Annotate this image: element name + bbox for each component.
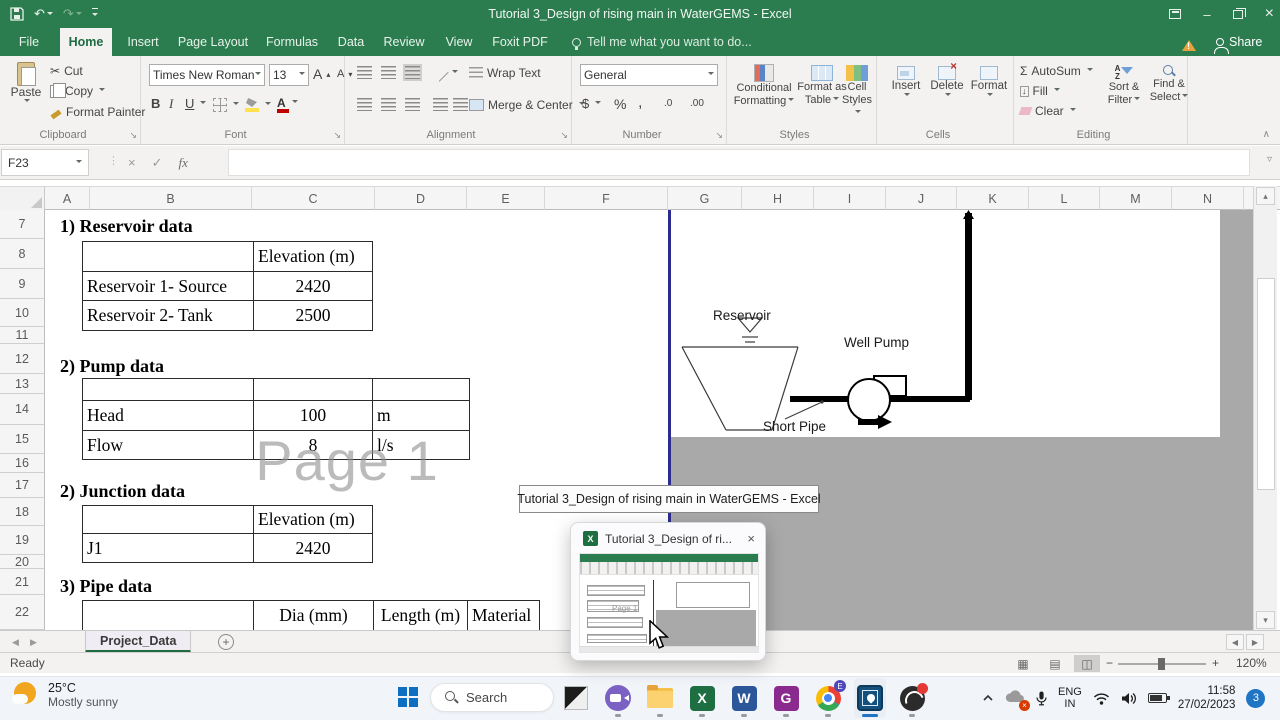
accounting-format-button[interactable]: $ bbox=[582, 96, 601, 111]
cell[interactable]: Elevation (m) bbox=[254, 242, 373, 272]
dropdown-arrow-icon bbox=[595, 101, 601, 107]
weather-condition: Mostly sunny bbox=[48, 695, 118, 709]
enter-entry-icon[interactable]: ✓ bbox=[152, 155, 163, 171]
tray-time: 11:58 bbox=[1207, 684, 1235, 698]
vertical-scroll-thumb[interactable] bbox=[1257, 278, 1275, 490]
namebox-splitter[interactable]: ⋮ bbox=[108, 154, 119, 167]
dropdown-arrow-icon bbox=[233, 102, 239, 108]
cell[interactable]: 8 bbox=[254, 431, 373, 460]
row-header[interactable]: 18 bbox=[0, 498, 45, 526]
zoom-in-button[interactable]: + bbox=[1212, 656, 1219, 670]
cell[interactable]: Dia (mm) bbox=[254, 601, 374, 630]
pipe-table[interactable]: Dia (mm) Length (m) Material bbox=[82, 600, 540, 630]
alignment-group: Wrap Text Merge & Center Alignment ↘ bbox=[345, 56, 572, 144]
page-layout-view-button[interactable]: ▤ bbox=[1042, 655, 1068, 672]
insert-cells-icon bbox=[897, 66, 915, 80]
delete-cells-button[interactable]: Delete bbox=[927, 66, 967, 99]
bottom-align-icon[interactable] bbox=[405, 66, 420, 79]
top-align-icon[interactable] bbox=[357, 66, 372, 79]
tab-data[interactable]: Data bbox=[330, 28, 372, 56]
row-header[interactable]: 22 bbox=[0, 595, 45, 630]
preview-close-icon[interactable]: × bbox=[747, 531, 755, 546]
window-title: Tutorial 3_Design of rising main in Wate… bbox=[0, 0, 1280, 28]
tab-formulas[interactable]: Formulas bbox=[260, 28, 324, 56]
row-header[interactable]: 21 bbox=[0, 569, 45, 595]
column-header-h[interactable]: H bbox=[742, 187, 814, 210]
dropdown-arrow-icon bbox=[987, 93, 993, 99]
system-tray: × ENG IN 11:58 27/02/2023 3 bbox=[982, 676, 1265, 720]
row-header[interactable]: 8 bbox=[0, 239, 45, 269]
excel-icon: X bbox=[690, 686, 715, 711]
preview-title: Tutorial 3_Design of ri... bbox=[605, 532, 732, 546]
scissors-icon: ✂ bbox=[50, 64, 60, 78]
row-header[interactable]: 19 bbox=[0, 526, 45, 555]
tray-clock[interactable]: 11:58 27/02/2023 bbox=[1178, 684, 1236, 712]
zoom-out-button[interactable]: − bbox=[1106, 656, 1113, 670]
alignment-dialog-launcher[interactable]: ↘ bbox=[560, 130, 568, 141]
sort-filter-button[interactable]: AZ Sort &Filter bbox=[1102, 65, 1146, 107]
minimize-button[interactable]: – bbox=[1203, 7, 1210, 22]
format-as-table-icon bbox=[811, 65, 833, 81]
cell[interactable]: Head bbox=[83, 401, 254, 431]
font-group-label: Font bbox=[141, 129, 330, 141]
ribbon-tab-row: File Home Insert Page Layout Formulas Da… bbox=[0, 28, 1280, 56]
fill-button[interactable]: ↓Fill bbox=[1020, 84, 1060, 98]
diagram-label-well-pump: Well Pump bbox=[844, 335, 909, 350]
dropdown-arrow-icon bbox=[299, 72, 305, 78]
borders-icon bbox=[213, 98, 227, 112]
number-dialog-launcher[interactable]: ↘ bbox=[715, 130, 723, 141]
tab-home[interactable]: Home bbox=[60, 28, 112, 56]
sheet-tab-project-data[interactable]: Project_Data bbox=[85, 631, 191, 653]
dropdown-arrow-icon bbox=[255, 72, 261, 78]
dropdown-arrow-icon bbox=[945, 93, 951, 99]
wrap-text-icon bbox=[469, 67, 483, 79]
collapse-ribbon-button[interactable]: ∧ bbox=[1263, 129, 1270, 140]
dropdown-arrow-icon bbox=[855, 110, 861, 116]
merge-center-icon bbox=[469, 99, 484, 111]
delete-cells-icon bbox=[938, 66, 956, 80]
foxit-pdf-icon: G bbox=[774, 686, 799, 711]
hscroll-left-icon[interactable]: ◀ bbox=[1226, 634, 1244, 650]
grow-font-button[interactable]: A▴ bbox=[313, 66, 330, 82]
page-break-view-button[interactable]: ◫ bbox=[1074, 655, 1100, 672]
alignment-group-label: Alignment bbox=[345, 129, 557, 141]
cell[interactable]: Flow bbox=[83, 431, 254, 460]
search-icon bbox=[445, 691, 458, 704]
cell[interactable]: 100 bbox=[254, 401, 373, 431]
taskbar-item-task-view[interactable] bbox=[560, 678, 592, 718]
fill-color-button[interactable] bbox=[245, 98, 271, 112]
tab-review[interactable]: Review bbox=[378, 28, 430, 56]
row-header[interactable]: 20 bbox=[0, 555, 45, 569]
select-all-corner[interactable] bbox=[0, 187, 45, 210]
warning-icon[interactable]: ! bbox=[1182, 33, 1196, 51]
reservoir-table[interactable]: Elevation (m) Reservoir 1- Source 2420 R… bbox=[82, 241, 373, 331]
copy-icon bbox=[50, 85, 61, 98]
pump-heading: 2) Pump data bbox=[60, 356, 164, 377]
column-header-a[interactable]: A bbox=[45, 187, 90, 210]
word-icon: W bbox=[732, 686, 757, 711]
format-painter-button[interactable]: Format Painter bbox=[50, 105, 145, 119]
cell-styles-icon bbox=[846, 65, 868, 81]
cut-button[interactable]: ✂Cut bbox=[50, 64, 83, 78]
dropdown-arrow-icon bbox=[1182, 94, 1188, 100]
taskbar-item-foxit[interactable]: G bbox=[770, 678, 802, 718]
next-sheet-icon[interactable]: ▶ bbox=[30, 631, 37, 653]
taskbar-item-watergems[interactable] bbox=[854, 678, 886, 718]
reservoir-heading: 1) Reservoir data bbox=[60, 216, 193, 237]
cells-group: Insert Delete Format Cells bbox=[877, 56, 1014, 144]
tab-insert[interactable]: Insert bbox=[120, 28, 166, 56]
onedrive-icon[interactable]: × bbox=[1005, 689, 1025, 708]
number-group-label: Number bbox=[572, 129, 712, 141]
wrap-text-button[interactable]: Wrap Text bbox=[469, 66, 541, 80]
clipboard-group-label: Clipboard bbox=[0, 129, 126, 141]
obs-icon bbox=[900, 686, 925, 711]
row-header[interactable]: 9 bbox=[0, 269, 45, 299]
cell[interactable]: Length (m) bbox=[374, 601, 468, 630]
insert-function-button[interactable]: fx bbox=[179, 155, 188, 171]
tab-file[interactable]: File bbox=[8, 28, 50, 56]
language-indicator[interactable]: ENG IN bbox=[1058, 686, 1082, 710]
cancel-entry-icon[interactable]: × bbox=[128, 155, 136, 170]
column-header-n[interactable]: N bbox=[1172, 187, 1244, 210]
column-header-d[interactable]: D bbox=[375, 187, 467, 210]
ribbon-display-options-button[interactable] bbox=[1169, 9, 1181, 19]
format-cells-button[interactable]: Format bbox=[969, 66, 1009, 99]
notification-badge[interactable]: 3 bbox=[1246, 689, 1265, 708]
font-color-button[interactable]: A bbox=[277, 96, 298, 110]
scroll-down-icon[interactable]: ▾ bbox=[1256, 611, 1275, 629]
eraser-icon bbox=[1019, 107, 1033, 115]
column-headers: A B C D E F G H I J K L M N bbox=[0, 186, 1280, 210]
cell[interactable] bbox=[254, 379, 373, 401]
folder-icon bbox=[647, 688, 673, 708]
paste-button[interactable]: Paste bbox=[8, 62, 44, 105]
junction-table[interactable]: Elevation (m) J1 2420 bbox=[82, 505, 373, 563]
font-size-combo[interactable]: 13 bbox=[269, 64, 309, 86]
cell[interactable]: J1 bbox=[83, 534, 254, 563]
tell-me-box[interactable]: Tell me what you want to do... bbox=[572, 28, 752, 56]
diagram-label-short-pipe: Short Pipe bbox=[763, 419, 826, 434]
cell[interactable]: Elevation (m) bbox=[254, 506, 373, 534]
percent-style-button[interactable]: % bbox=[614, 96, 626, 112]
tray-expand-chevron-icon[interactable] bbox=[982, 694, 994, 702]
cell[interactable]: Material bbox=[468, 601, 540, 630]
tab-foxit-pdf[interactable]: Foxit PDF bbox=[488, 28, 552, 56]
font-color-icon: A bbox=[277, 96, 286, 110]
dropdown-arrow-icon bbox=[1134, 97, 1140, 103]
vertical-scrollbar[interactable]: ▴ ▾ bbox=[1253, 186, 1277, 630]
window-controls: – × bbox=[1169, 0, 1274, 28]
pump-scheme-diagram[interactable]: Reservoir Well Pump Short Pipe bbox=[672, 210, 1220, 437]
person-icon bbox=[1216, 38, 1224, 46]
taskbar-item-meet[interactable] bbox=[602, 678, 634, 718]
normal-view-button[interactable]: ▦ bbox=[1010, 655, 1036, 672]
formula-bar: F23 ⋮ × ✓ fx ▿ bbox=[0, 146, 1280, 180]
taskbar-item-chrome[interactable]: E bbox=[812, 678, 844, 718]
taskbar-item-word[interactable]: W bbox=[728, 678, 760, 718]
mini-page-watermark: Page 1 bbox=[612, 604, 637, 613]
wifi-icon[interactable] bbox=[1093, 692, 1110, 705]
decrease-indent-icon[interactable] bbox=[433, 98, 448, 111]
cell[interactable]: 2420 bbox=[254, 272, 373, 301]
orientation-button[interactable] bbox=[433, 66, 458, 79]
currency-icon: $ bbox=[582, 96, 589, 111]
row-header[interactable]: 16 bbox=[0, 454, 45, 473]
excel-window: ↶ ↷ Tutorial 3_Design of rising main in … bbox=[0, 0, 1280, 720]
weather-temp: 25°C bbox=[48, 681, 118, 695]
cell[interactable]: l/s bbox=[373, 431, 470, 460]
taskbar-search[interactable]: Search bbox=[430, 683, 554, 712]
dropdown-arrow-icon bbox=[24, 99, 30, 105]
sort-filter-icon: AZ bbox=[1115, 65, 1134, 81]
column-header-i[interactable]: I bbox=[814, 187, 886, 210]
video-camera-icon bbox=[605, 685, 631, 711]
tray-date: 27/02/2023 bbox=[1178, 698, 1236, 712]
share-button[interactable]: Share bbox=[1216, 28, 1262, 56]
column-header-j[interactable]: J bbox=[886, 187, 957, 210]
tab-page-layout[interactable]: Page Layout bbox=[172, 28, 254, 56]
row-header[interactable]: 14 bbox=[0, 394, 45, 425]
lightbulb-icon bbox=[572, 38, 581, 47]
dropdown-arrow-icon bbox=[200, 101, 206, 107]
increase-indent-icon[interactable] bbox=[453, 98, 468, 111]
cell[interactable]: m bbox=[373, 401, 470, 431]
row-header[interactable]: 11 bbox=[0, 327, 45, 344]
conditional-formatting-button[interactable]: ConditionalFormatting bbox=[733, 64, 795, 108]
title-bar: ↶ ↷ Tutorial 3_Design of rising main in … bbox=[0, 0, 1280, 28]
dropdown-arrow-icon bbox=[1070, 108, 1076, 114]
conditional-formatting-icon bbox=[754, 64, 774, 82]
taskbar-tooltip: Tutorial 3_Design of rising main in Wate… bbox=[519, 485, 819, 513]
new-sheet-button[interactable]: + bbox=[218, 634, 234, 650]
fill-color-icon bbox=[245, 98, 259, 112]
scroll-up-icon[interactable]: ▴ bbox=[1256, 187, 1275, 205]
weather-sun-icon bbox=[12, 681, 40, 709]
cell[interactable]: Reservoir 1- Source bbox=[83, 272, 254, 301]
merge-center-button[interactable]: Merge & Center bbox=[469, 98, 585, 112]
weather-widget[interactable]: 25°C Mostly sunny bbox=[12, 681, 118, 709]
dropdown-arrow-icon bbox=[452, 70, 458, 76]
pipe-heading: 3) Pipe data bbox=[60, 576, 152, 597]
pump-body bbox=[848, 379, 890, 421]
clipboard-group: Paste ✂Cut Copy Format Painter Clipboard… bbox=[0, 56, 141, 144]
prev-sheet-icon[interactable]: ◀ bbox=[12, 631, 19, 653]
column-header-m[interactable]: M bbox=[1100, 187, 1172, 210]
magnifier-icon bbox=[1163, 65, 1176, 78]
find-select-button[interactable]: Find &Select bbox=[1148, 65, 1190, 104]
styles-group: ConditionalFormatting Format asTable Cel… bbox=[727, 56, 877, 144]
ribbon: Paste ✂Cut Copy Format Painter Clipboard… bbox=[0, 56, 1280, 145]
autosum-button[interactable]: ΣAutoSum bbox=[1020, 64, 1093, 78]
number-format-combo[interactable]: General bbox=[580, 64, 718, 86]
junction-heading: 2) Junction data bbox=[60, 481, 185, 502]
zoom-level[interactable]: 120% bbox=[1236, 656, 1267, 670]
dropdown-arrow-icon bbox=[708, 72, 714, 78]
row-header[interactable]: 17 bbox=[0, 473, 45, 498]
taskbar-icons: X W G E bbox=[560, 678, 928, 720]
taskbar-item-excel[interactable]: X bbox=[686, 678, 718, 718]
taskbar-item-file-explorer[interactable] bbox=[644, 678, 676, 718]
borders-button[interactable] bbox=[213, 98, 239, 112]
column-header-g[interactable]: G bbox=[668, 187, 742, 210]
copy-button[interactable]: Copy bbox=[50, 84, 105, 98]
dropdown-arrow-icon bbox=[1054, 88, 1060, 94]
cell[interactable] bbox=[83, 506, 254, 534]
cell[interactable] bbox=[373, 379, 470, 401]
diagram-label-reservoir: Reservoir bbox=[713, 308, 771, 323]
middle-align-icon[interactable] bbox=[381, 66, 396, 79]
fill-down-icon: ↓ bbox=[1020, 86, 1029, 97]
align-center-icon[interactable] bbox=[381, 98, 396, 111]
column-header-e[interactable]: E bbox=[467, 187, 545, 210]
clipboard-dialog-launcher[interactable]: ↘ bbox=[129, 130, 137, 141]
cell[interactable] bbox=[83, 379, 254, 401]
close-button[interactable]: × bbox=[1265, 5, 1274, 23]
styles-group-label: Styles bbox=[727, 129, 862, 141]
cell[interactable] bbox=[83, 601, 254, 630]
bold-button[interactable]: B bbox=[151, 96, 160, 111]
onedrive-error-badge: × bbox=[1019, 700, 1030, 711]
row-header[interactable]: 12 bbox=[0, 344, 45, 374]
taskbar-item-obs[interactable] bbox=[896, 678, 928, 718]
speaker-icon[interactable] bbox=[1121, 692, 1137, 705]
comma-style-button[interactable]: , bbox=[638, 94, 642, 112]
restore-button[interactable] bbox=[1233, 10, 1243, 19]
pump-table[interactable]: Head 100 m Flow 8 l/s bbox=[82, 378, 470, 460]
row-header[interactable]: 10 bbox=[0, 299, 45, 327]
editing-group: ΣAutoSum ↓Fill Clear AZ Sort &Filter Fin… bbox=[1014, 56, 1188, 144]
font-dialog-launcher[interactable]: ↘ bbox=[333, 130, 341, 141]
font-group: Times New Roman 13 A▴ A▾ B I U A Font ↘ bbox=[141, 56, 345, 144]
column-header-l[interactable]: L bbox=[1029, 187, 1100, 210]
underline-button[interactable]: U bbox=[185, 96, 206, 111]
dropdown-arrow-icon bbox=[904, 93, 910, 99]
row-header[interactable]: 15 bbox=[0, 425, 45, 454]
dropdown-arrow-icon bbox=[76, 160, 82, 166]
tab-view[interactable]: View bbox=[438, 28, 480, 56]
status-mode: Ready bbox=[10, 656, 45, 670]
zoom-slider-thumb[interactable] bbox=[1158, 658, 1165, 670]
task-view-icon bbox=[564, 686, 588, 710]
sigma-icon: Σ bbox=[1020, 64, 1027, 78]
column-header-c[interactable]: C bbox=[252, 187, 375, 210]
font-name-combo[interactable]: Times New Roman bbox=[149, 64, 265, 86]
excel-icon: X bbox=[583, 531, 598, 546]
microphone-icon[interactable] bbox=[1036, 691, 1047, 706]
format-cells-icon bbox=[980, 66, 998, 80]
decrease-decimal-button[interactable]: .00 bbox=[690, 98, 704, 109]
mouse-cursor bbox=[648, 620, 670, 650]
column-header-f[interactable]: F bbox=[545, 187, 668, 210]
formula-input[interactable] bbox=[228, 149, 1250, 176]
dropdown-arrow-icon bbox=[788, 98, 794, 104]
battery-icon[interactable] bbox=[1148, 693, 1167, 703]
brush-icon bbox=[50, 106, 62, 118]
expand-formula-bar-icon[interactable]: ▿ bbox=[1267, 154, 1272, 165]
edge-badge-icon: E bbox=[834, 680, 846, 692]
cell[interactable]: 2500 bbox=[254, 301, 373, 331]
align-right-icon[interactable] bbox=[405, 98, 420, 111]
start-button[interactable] bbox=[398, 687, 418, 707]
cells-group-label: Cells bbox=[877, 129, 999, 141]
cell[interactable] bbox=[83, 242, 254, 272]
editing-group-label: Editing bbox=[1014, 129, 1173, 141]
hscroll-right-icon[interactable]: ▶ bbox=[1246, 634, 1264, 650]
italic-button[interactable]: I bbox=[169, 96, 173, 112]
insert-cells-button[interactable]: Insert bbox=[887, 66, 925, 99]
number-group: General $ % , .0 .00 Number ↘ bbox=[572, 56, 727, 144]
name-box[interactable]: F23 bbox=[1, 149, 89, 176]
alert-area: ! bbox=[1182, 28, 1196, 56]
dropdown-arrow-icon bbox=[292, 100, 298, 106]
increase-decimal-button[interactable]: .0 bbox=[664, 98, 672, 109]
column-header-k[interactable]: K bbox=[957, 187, 1029, 210]
cell-styles-button[interactable]: CellStyles bbox=[839, 65, 875, 120]
clear-button[interactable]: Clear bbox=[1020, 104, 1076, 118]
cell[interactable]: 2420 bbox=[254, 534, 373, 563]
orientation-icon bbox=[430, 63, 448, 81]
cell[interactable]: Reservoir 2- Tank bbox=[83, 301, 254, 331]
dropdown-arrow-icon bbox=[1087, 68, 1093, 74]
dropdown-arrow-icon bbox=[265, 102, 271, 108]
row-header[interactable]: 7 bbox=[0, 210, 45, 239]
dropdown-arrow-icon bbox=[99, 88, 105, 94]
column-header-b[interactable]: B bbox=[90, 187, 252, 210]
row-header[interactable]: 13 bbox=[0, 374, 45, 394]
row-headers: 7 8 9 10 11 12 13 14 15 16 17 18 19 20 2… bbox=[0, 210, 45, 630]
align-left-icon[interactable] bbox=[357, 98, 372, 111]
outside-print-area bbox=[1220, 210, 1253, 437]
watergems-icon bbox=[857, 685, 883, 711]
paste-icon bbox=[17, 62, 35, 86]
